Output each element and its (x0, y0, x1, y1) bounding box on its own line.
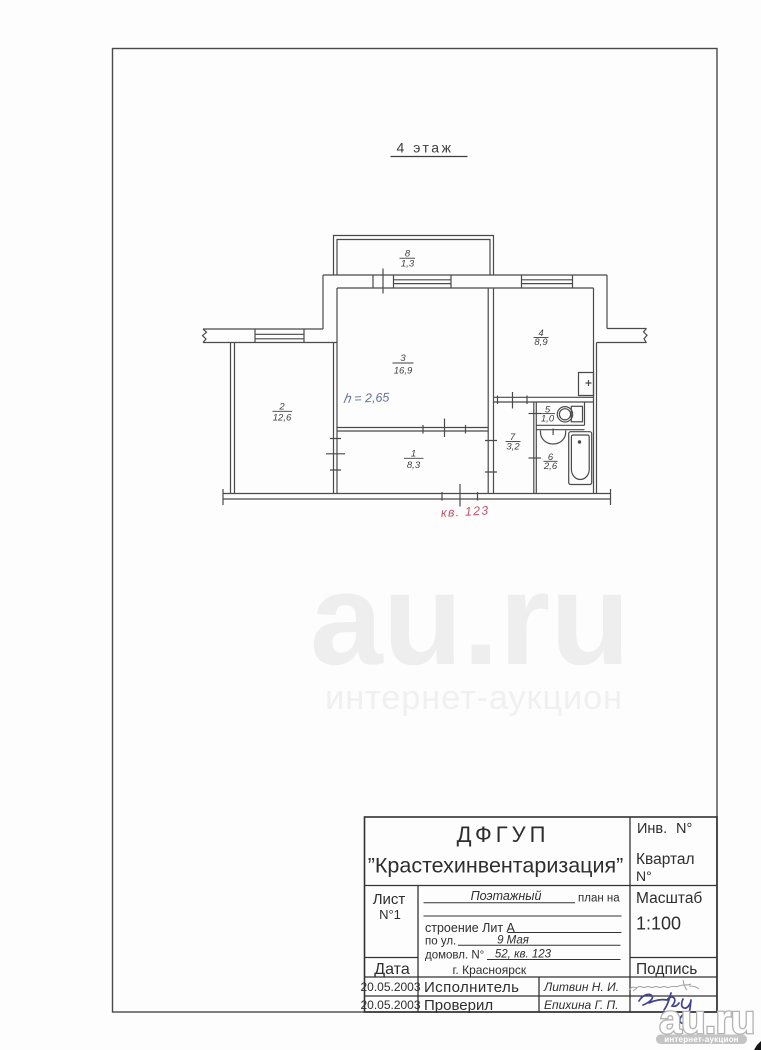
svg-text:домовл. N°: домовл. N° (425, 950, 484, 962)
svg-text:1,0: 1,0 (541, 414, 555, 425)
svg-text:3: 3 (400, 353, 406, 364)
svg-text:кв. 123: кв. 123 (440, 503, 489, 520)
svg-text:интернет-аукцион: интернет-аукцион (325, 679, 623, 717)
svg-text:12,6: 12,6 (273, 413, 292, 424)
svg-text:ДФГУП: ДФГУП (457, 822, 550, 847)
svg-text:8,9: 8,9 (534, 337, 548, 348)
svg-text:N°1: N°1 (379, 907, 401, 922)
svg-text:план на: план на (578, 893, 620, 905)
svg-text:20.05.2003: 20.05.2003 (360, 980, 420, 994)
svg-text:интернет-аукцион: интернет-аукцион (664, 1035, 738, 1044)
svg-text:2,6: 2,6 (543, 461, 558, 472)
svg-text:Лист: Лист (373, 891, 406, 908)
svg-text:20.05.2003: 20.05.2003 (360, 998, 420, 1012)
svg-text:Проверил: Проверил (424, 997, 493, 1014)
svg-text:Епихина Г. П.: Епихина Г. П. (544, 998, 619, 1012)
svg-text:ℎ = 2,65: ℎ = 2,65 (343, 390, 390, 406)
svg-text:Дата: Дата (374, 961, 410, 978)
svg-text:N°: N° (636, 868, 652, 884)
svg-text:г. Красноярск: г. Красноярск (453, 963, 527, 977)
svg-text:3,2: 3,2 (506, 442, 520, 453)
svg-text:1,3: 1,3 (401, 259, 415, 270)
svg-text:Поэтажный: Поэтажный (471, 889, 542, 903)
svg-text:52, кв. 123: 52, кв. 123 (495, 949, 552, 961)
svg-text:16,9: 16,9 (394, 366, 413, 377)
svg-text:Масштаб: Масштаб (636, 890, 702, 907)
svg-text:N°: N° (676, 821, 692, 837)
svg-text:1:100: 1:100 (636, 914, 681, 934)
svg-text:”Крастехинвентаризация”: ”Крастехинвентаризация” (368, 854, 624, 878)
svg-text:au.ru: au.ru (310, 545, 630, 692)
svg-text:Инв.: Инв. (637, 821, 667, 837)
svg-text:Литвин Н. И.: Литвин Н. И. (543, 980, 619, 994)
svg-text:Исполнитель: Исполнитель (424, 979, 519, 996)
svg-text:строение Лит А: строение Лит А (425, 921, 516, 935)
svg-text:4 этаж: 4 этаж (397, 140, 454, 156)
svg-text:по ул.: по ул. (425, 936, 456, 948)
svg-text:Квартал: Квартал (636, 851, 695, 868)
svg-text:8,3: 8,3 (407, 460, 421, 471)
svg-text:Подпись: Подпись (636, 961, 697, 978)
svg-text:9 Мая: 9 Мая (497, 935, 529, 947)
